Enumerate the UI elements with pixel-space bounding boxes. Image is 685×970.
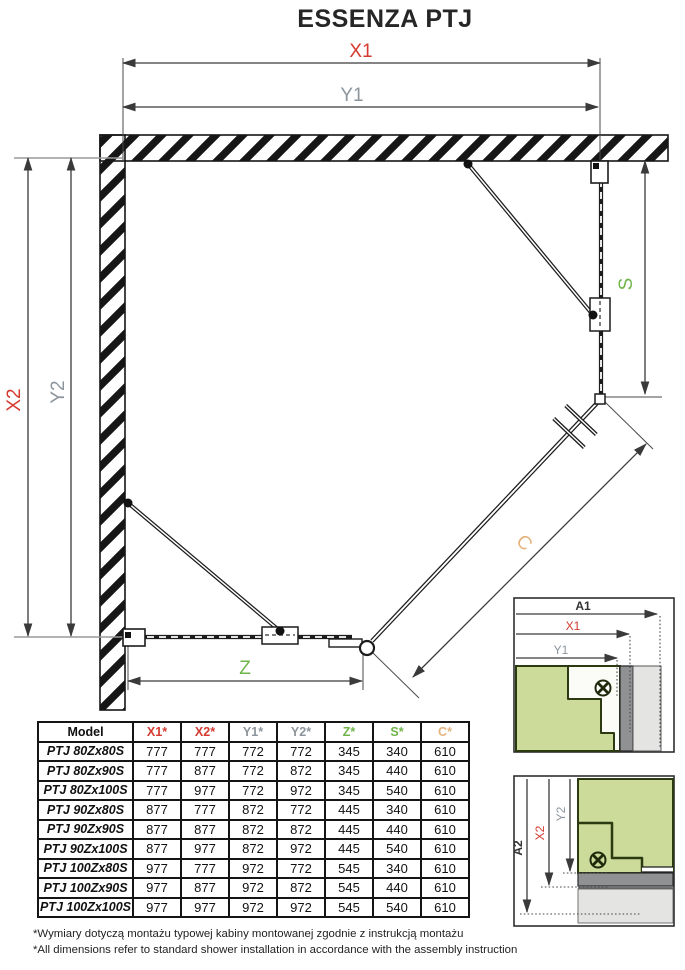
value-cell: 610 bbox=[421, 820, 469, 840]
column-header: Y1* bbox=[229, 722, 277, 742]
table-row: PTJ 80Zx90S777877772872345440610 bbox=[38, 761, 469, 781]
table-row: PTJ 90Zx80S877777872772445340610 bbox=[38, 800, 469, 820]
detail-a1-label: A1 bbox=[575, 599, 591, 613]
dim-label-x2: X2 bbox=[4, 388, 25, 411]
detail-a2: A2 X2 Y2 bbox=[513, 775, 675, 927]
column-header: X2* bbox=[181, 722, 229, 742]
column-header: Y2* bbox=[277, 722, 325, 742]
value-cell: 445 bbox=[325, 820, 373, 840]
value-cell: 872 bbox=[229, 800, 277, 820]
value-cell: 977 bbox=[181, 839, 229, 859]
value-cell: 977 bbox=[133, 859, 181, 879]
left-wall bbox=[100, 135, 125, 710]
value-cell: 345 bbox=[325, 761, 373, 781]
top-wall bbox=[100, 135, 668, 161]
screw-icon bbox=[596, 681, 611, 696]
glass-section bbox=[578, 873, 673, 886]
seal-section bbox=[633, 666, 661, 751]
column-header: Model bbox=[38, 722, 133, 742]
detail-a1: A1 X1 Y1 bbox=[513, 597, 675, 753]
table-row: PTJ 100Zx100S977977972972545540610 bbox=[38, 898, 469, 918]
value-cell: 972 bbox=[229, 898, 277, 918]
door-hinge bbox=[595, 394, 605, 404]
page-title: ESSENZA PTJ bbox=[100, 5, 670, 34]
table-row: PTJ 100Zx80S977777972772545340610 bbox=[38, 859, 469, 879]
value-cell: 610 bbox=[421, 878, 469, 898]
column-header: S* bbox=[373, 722, 421, 742]
model-cell: PTJ 80Zx90S bbox=[38, 761, 133, 781]
model-cell: PTJ 90Zx90S bbox=[38, 820, 133, 840]
support-bar-top bbox=[464, 160, 611, 332]
value-cell: 972 bbox=[277, 898, 325, 918]
value-cell: 545 bbox=[325, 898, 373, 918]
model-cell: PTJ 100Zx100S bbox=[38, 898, 133, 918]
value-cell: 772 bbox=[229, 742, 277, 762]
table-row: PTJ 100Zx90S977877972872545440610 bbox=[38, 878, 469, 898]
value-cell: 545 bbox=[325, 878, 373, 898]
value-cell: 977 bbox=[133, 878, 181, 898]
value-cell: 772 bbox=[277, 859, 325, 879]
value-cell: 610 bbox=[421, 859, 469, 879]
seal-section bbox=[578, 889, 673, 923]
value-cell: 340 bbox=[373, 800, 421, 820]
value-cell: 872 bbox=[229, 820, 277, 840]
value-cell: 545 bbox=[325, 859, 373, 879]
model-cell: PTJ 100Zx90S bbox=[38, 878, 133, 898]
value-cell: 972 bbox=[277, 839, 325, 859]
value-cell: 777 bbox=[133, 742, 181, 762]
value-cell: 972 bbox=[277, 781, 325, 801]
value-cell: 445 bbox=[325, 839, 373, 859]
table-row: PTJ 80Zx80S777777772772345340610 bbox=[38, 742, 469, 762]
screw-icon bbox=[591, 853, 606, 868]
dim-label-x1: X1 bbox=[349, 41, 372, 62]
footnote-pl: *Wymiary dotyczą montażu typowej kabiny … bbox=[33, 926, 517, 942]
dim-label-y2: Y2 bbox=[48, 380, 69, 403]
value-cell: 777 bbox=[181, 742, 229, 762]
value-cell: 777 bbox=[133, 781, 181, 801]
value-cell: 977 bbox=[181, 898, 229, 918]
dimensions-table: ModelX1*X2*Y1*Y2*Z*S*C* PTJ 80Zx80S77777… bbox=[37, 721, 470, 918]
table-row: PTJ 90Zx100S877977872972445540610 bbox=[38, 839, 469, 859]
value-cell: 340 bbox=[373, 742, 421, 762]
value-cell: 440 bbox=[373, 878, 421, 898]
door-pivot bbox=[360, 641, 374, 655]
detail-a2-label: A2 bbox=[511, 840, 525, 856]
value-cell: 540 bbox=[373, 781, 421, 801]
column-header: C* bbox=[421, 722, 469, 742]
detail-a2-y2: Y2 bbox=[554, 806, 568, 821]
value-cell: 777 bbox=[133, 761, 181, 781]
wall-profile-top bbox=[591, 161, 608, 183]
value-cell: 345 bbox=[325, 781, 373, 801]
model-cell: PTJ 100Zx80S bbox=[38, 859, 133, 879]
table-header: ModelX1*X2*Y1*Y2*Z*S*C* bbox=[38, 722, 469, 742]
support-bar-left bbox=[124, 499, 299, 645]
value-cell: 340 bbox=[373, 859, 421, 879]
value-cell: 877 bbox=[181, 761, 229, 781]
value-cell: 345 bbox=[325, 742, 373, 762]
value-cell: 540 bbox=[373, 839, 421, 859]
value-cell: 872 bbox=[229, 839, 277, 859]
dim-label-z: Z bbox=[239, 658, 251, 679]
glass-section bbox=[620, 666, 633, 751]
table-row: PTJ 90Zx90S877877872872445440610 bbox=[38, 820, 469, 840]
value-cell: 777 bbox=[181, 859, 229, 879]
model-cell: PTJ 90Zx100S bbox=[38, 839, 133, 859]
value-cell: 877 bbox=[133, 800, 181, 820]
dim-label-s: S bbox=[616, 278, 637, 291]
value-cell: 877 bbox=[181, 878, 229, 898]
model-cell: PTJ 80Zx80S bbox=[38, 742, 133, 762]
footnote-en: *All dimensions refer to standard shower… bbox=[33, 942, 517, 958]
value-cell: 610 bbox=[421, 800, 469, 820]
detail-a2-x2: X2 bbox=[533, 825, 547, 840]
column-header: X1* bbox=[133, 722, 181, 742]
value-cell: 877 bbox=[133, 839, 181, 859]
value-cell: 610 bbox=[421, 898, 469, 918]
value-cell: 540 bbox=[373, 898, 421, 918]
value-cell: 610 bbox=[421, 781, 469, 801]
value-cell: 772 bbox=[277, 742, 325, 762]
value-cell: 610 bbox=[421, 839, 469, 859]
value-cell: 972 bbox=[229, 878, 277, 898]
value-cell: 977 bbox=[181, 781, 229, 801]
value-cell: 877 bbox=[133, 820, 181, 840]
value-cell: 445 bbox=[325, 800, 373, 820]
value-cell: 610 bbox=[421, 761, 469, 781]
value-cell: 872 bbox=[277, 820, 325, 840]
model-cell: PTJ 80Zx100S bbox=[38, 781, 133, 801]
model-cell: PTJ 90Zx80S bbox=[38, 800, 133, 820]
value-cell: 872 bbox=[277, 761, 325, 781]
detail-a1-x1: X1 bbox=[566, 619, 581, 633]
detail-a1-y1: Y1 bbox=[554, 643, 569, 657]
value-cell: 772 bbox=[229, 761, 277, 781]
column-header: Z* bbox=[325, 722, 373, 742]
dim-label-y1: Y1 bbox=[340, 85, 363, 106]
value-cell: 972 bbox=[229, 859, 277, 879]
closing-profile bbox=[329, 639, 362, 647]
table-row: PTJ 80Zx100S777977772972345540610 bbox=[38, 781, 469, 801]
footnotes: *Wymiary dotyczą montażu typowej kabiny … bbox=[33, 926, 517, 958]
value-cell: 610 bbox=[421, 742, 469, 762]
page: X1 Y1 X2 Y2 Z S C A1 X1 Y1 bbox=[0, 0, 685, 970]
dim-label-c: C bbox=[512, 531, 537, 556]
value-cell: 772 bbox=[277, 800, 325, 820]
value-cell: 777 bbox=[181, 800, 229, 820]
value-cell: 440 bbox=[373, 820, 421, 840]
value-cell: 440 bbox=[373, 761, 421, 781]
value-cell: 977 bbox=[133, 898, 181, 918]
value-cell: 877 bbox=[181, 820, 229, 840]
value-cell: 772 bbox=[229, 781, 277, 801]
value-cell: 872 bbox=[277, 878, 325, 898]
wall-profile-left bbox=[123, 629, 145, 646]
